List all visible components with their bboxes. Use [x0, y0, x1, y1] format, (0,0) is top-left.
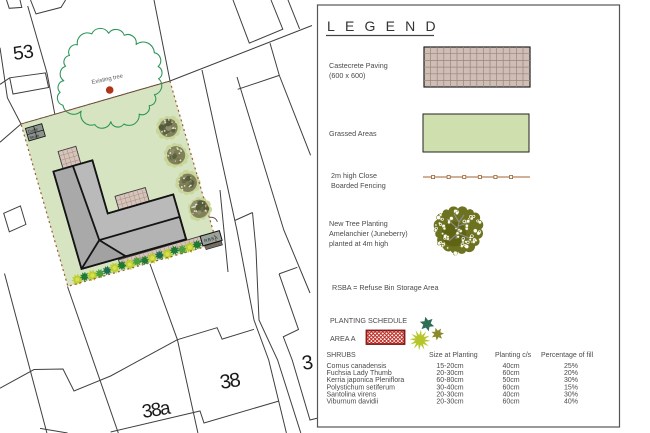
- svg-text:25%: 25%: [564, 363, 578, 370]
- svg-text:60cm: 60cm: [502, 399, 519, 406]
- svg-text:Amelanchier (Juneberry): Amelanchier (Juneberry): [329, 229, 408, 238]
- svg-text:Castecrete Paving: Castecrete Paving: [329, 61, 388, 70]
- svg-text:60cm: 60cm: [502, 370, 519, 377]
- svg-text:Size at Planting: Size at Planting: [429, 352, 478, 359]
- svg-text:AREA A: AREA A: [330, 334, 356, 343]
- svg-text:30%: 30%: [564, 377, 578, 384]
- svg-text:15%: 15%: [564, 384, 578, 391]
- svg-text:SHRUBS: SHRUBS: [327, 352, 357, 359]
- svg-text:30%: 30%: [564, 391, 578, 398]
- svg-text:20%: 20%: [564, 370, 578, 377]
- svg-text:15-20cm: 15-20cm: [436, 363, 463, 370]
- svg-text:Planting c/s: Planting c/s: [495, 352, 532, 359]
- svg-text:60cm: 60cm: [502, 384, 519, 391]
- svg-text:40cm: 40cm: [502, 391, 519, 398]
- svg-text:PLANTING SCHEDULE: PLANTING SCHEDULE: [330, 316, 407, 325]
- svg-text:Fuchsia Lady Thumb: Fuchsia Lady Thumb: [327, 370, 392, 377]
- svg-text:2m high Close: 2m high Close: [331, 171, 377, 180]
- svg-text:53: 53: [12, 41, 35, 65]
- svg-text:Santolina virens: Santolina virens: [327, 391, 377, 398]
- svg-text:20-30cm: 20-30cm: [436, 391, 463, 398]
- svg-text:Viburnum davidii: Viburnum davidii: [327, 399, 379, 406]
- svg-text:(600 x 600): (600 x 600): [329, 71, 365, 80]
- svg-text:Grassed Areas: Grassed Areas: [329, 129, 377, 138]
- svg-text:20-30cm: 20-30cm: [436, 399, 463, 406]
- svg-text:40cm: 40cm: [502, 363, 519, 370]
- svg-text:50cm: 50cm: [502, 377, 519, 384]
- svg-text:New Tree Planting: New Tree Planting: [329, 219, 388, 228]
- svg-text:Polystichum setiferum: Polystichum setiferum: [327, 384, 396, 391]
- svg-text:40%: 40%: [564, 399, 578, 406]
- svg-text:30-40cm: 30-40cm: [436, 384, 463, 391]
- svg-text:RSBA = Refuse Bin Storage Area: RSBA = Refuse Bin Storage Area: [332, 283, 438, 292]
- svg-text:planted at 4m high: planted at 4m high: [329, 239, 388, 248]
- svg-text:Cornus canadensis: Cornus canadensis: [327, 363, 387, 370]
- svg-text:Boarded Fencing: Boarded Fencing: [331, 181, 386, 190]
- svg-text:20-30cm: 20-30cm: [436, 370, 463, 377]
- svg-text:Kerria japonica Pleniflora: Kerria japonica Pleniflora: [327, 377, 405, 384]
- svg-text:Percentage of fill: Percentage of fill: [541, 352, 594, 359]
- svg-text:60-80cm: 60-80cm: [436, 377, 463, 384]
- svg-text:LEGEND: LEGEND: [327, 18, 446, 34]
